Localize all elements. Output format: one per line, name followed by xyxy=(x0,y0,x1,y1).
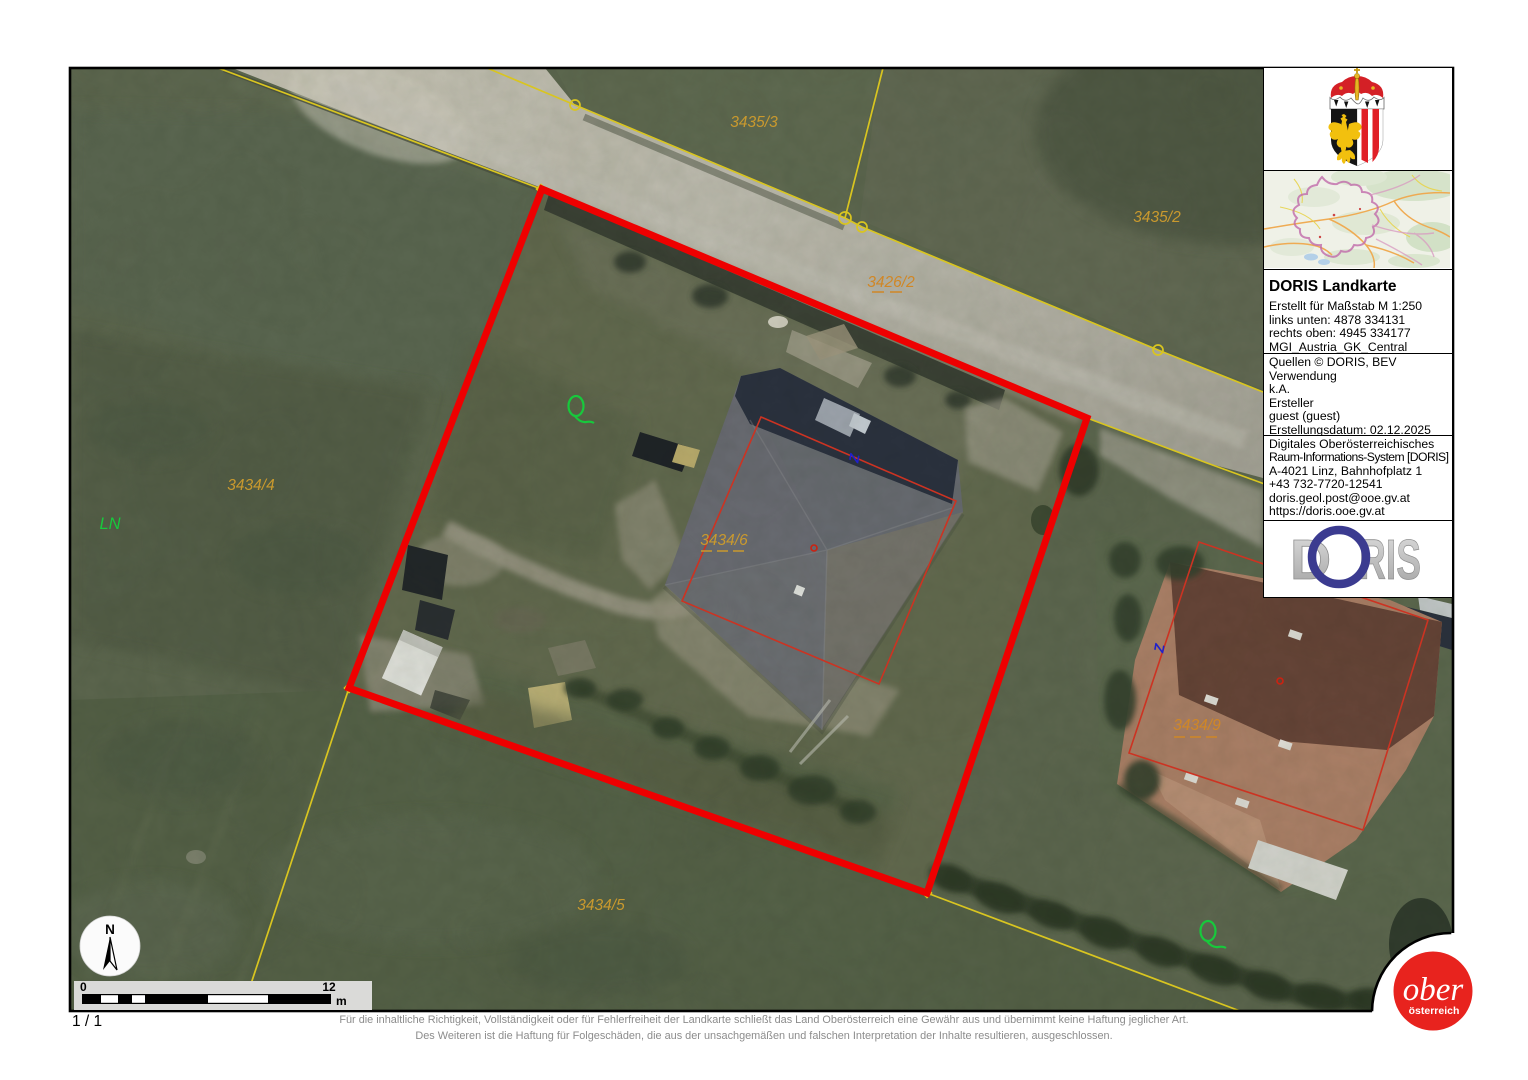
svg-text:3426/2: 3426/2 xyxy=(867,274,915,291)
svg-text:N: N xyxy=(105,922,115,937)
svg-text:3434/9: 3434/9 xyxy=(1173,717,1221,734)
svg-text:3435/2: 3435/2 xyxy=(1133,209,1181,226)
svg-text:m: m xyxy=(336,994,347,1008)
svg-text:0: 0 xyxy=(80,980,87,994)
svg-text:12: 12 xyxy=(322,980,336,994)
svg-text:3435/3: 3435/3 xyxy=(730,114,778,131)
svg-text:3434/6: 3434/6 xyxy=(700,532,748,549)
svg-text:3434/5: 3434/5 xyxy=(577,897,625,914)
svg-text:3434/4: 3434/4 xyxy=(227,477,275,494)
svg-text:LN: LN xyxy=(99,515,120,533)
svg-text:ober: ober xyxy=(1403,972,1464,1008)
